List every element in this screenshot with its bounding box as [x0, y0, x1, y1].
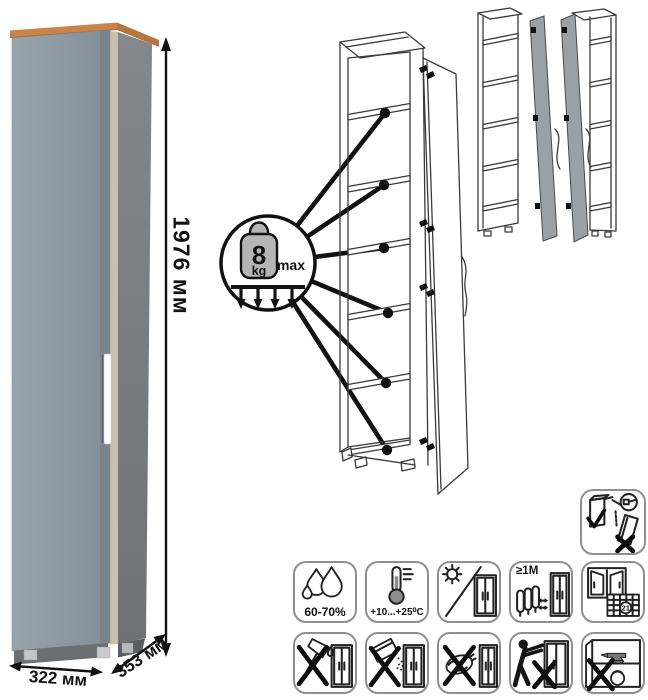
- wardrobe-glyph: [475, 575, 496, 616]
- open-door: [423, 58, 468, 494]
- front-door: [12, 30, 110, 651]
- powder-dots: [396, 657, 403, 670]
- variant-right-hinged: [478, 8, 560, 241]
- humidity-icon: 60-70%: [293, 561, 357, 623]
- no-wet-cleaning-icon: [437, 632, 501, 694]
- max-label: max: [277, 257, 305, 273]
- exploded-drawing: 8 kg max: [205, 10, 485, 510]
- shelf-pointer-dots: [379, 108, 393, 455]
- no-abrasive-powder-icon: [365, 632, 429, 694]
- height-arrow: [161, 37, 171, 657]
- wardrobe-glyph: [480, 645, 497, 687]
- calendar-day: 21: [621, 604, 630, 613]
- no-direct-sunlight-icon: [437, 561, 501, 623]
- edge-strip: [110, 31, 118, 645]
- height-dimension: 1976 мм: [168, 206, 195, 326]
- heat-source-distance-icon: ≥1M: [509, 561, 573, 623]
- person-glyph: [515, 640, 542, 685]
- kettlebell-glyph: [611, 671, 624, 685]
- temperature-label: +10...+25⁰C: [367, 607, 427, 618]
- side-panel: [118, 32, 152, 644]
- wardrobe-glyph: [551, 573, 569, 616]
- humidity-label: 60-70%: [295, 605, 355, 619]
- weight-unit: kg: [252, 264, 267, 278]
- no-dragging-icon: [509, 632, 573, 694]
- no-sharp-objects-icon: [293, 632, 357, 694]
- window-calendar-icon: 21: [581, 561, 645, 623]
- max-load-callout: 8 kg max: [221, 216, 315, 310]
- wardrobe-glyph: [332, 645, 352, 687]
- calendar-glyph: 21: [607, 595, 639, 616]
- temperature-icon: +10...+25⁰C: [365, 561, 429, 623]
- product-photo: [0, 0, 210, 700]
- product-sheet: 1976 мм 322 мм 353 мм: [0, 0, 648, 700]
- wardrobe-glyph: [404, 645, 424, 687]
- secure-to-wall-icon: [580, 489, 646, 555]
- door-variants: [473, 5, 623, 250]
- no-heavy-load-icon: [581, 632, 645, 694]
- door-handle: [102, 354, 111, 444]
- variant-left-hinged: [561, 9, 616, 242]
- distance-label: ≥1M: [516, 565, 538, 577]
